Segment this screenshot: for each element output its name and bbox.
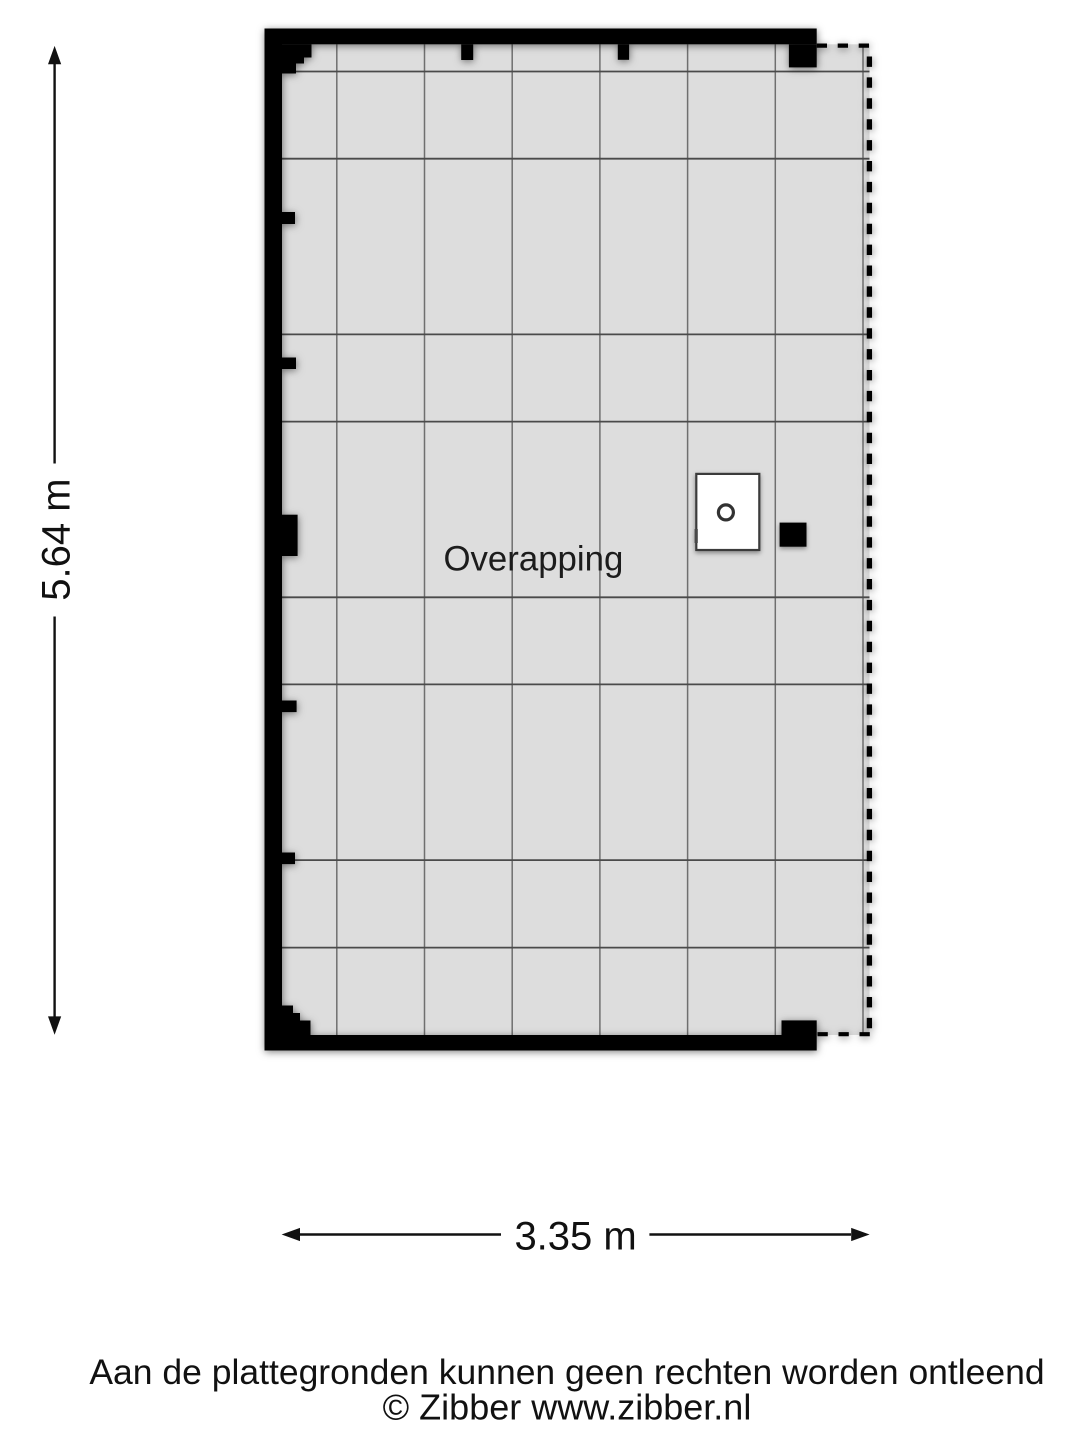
- svg-text:5.64 m: 5.64 m: [34, 478, 78, 600]
- svg-text:Overapping: Overapping: [443, 540, 623, 579]
- svg-text:© Zibber www.zibber.nl: © Zibber www.zibber.nl: [383, 1387, 752, 1428]
- svg-text:3.35 m: 3.35 m: [514, 1214, 636, 1258]
